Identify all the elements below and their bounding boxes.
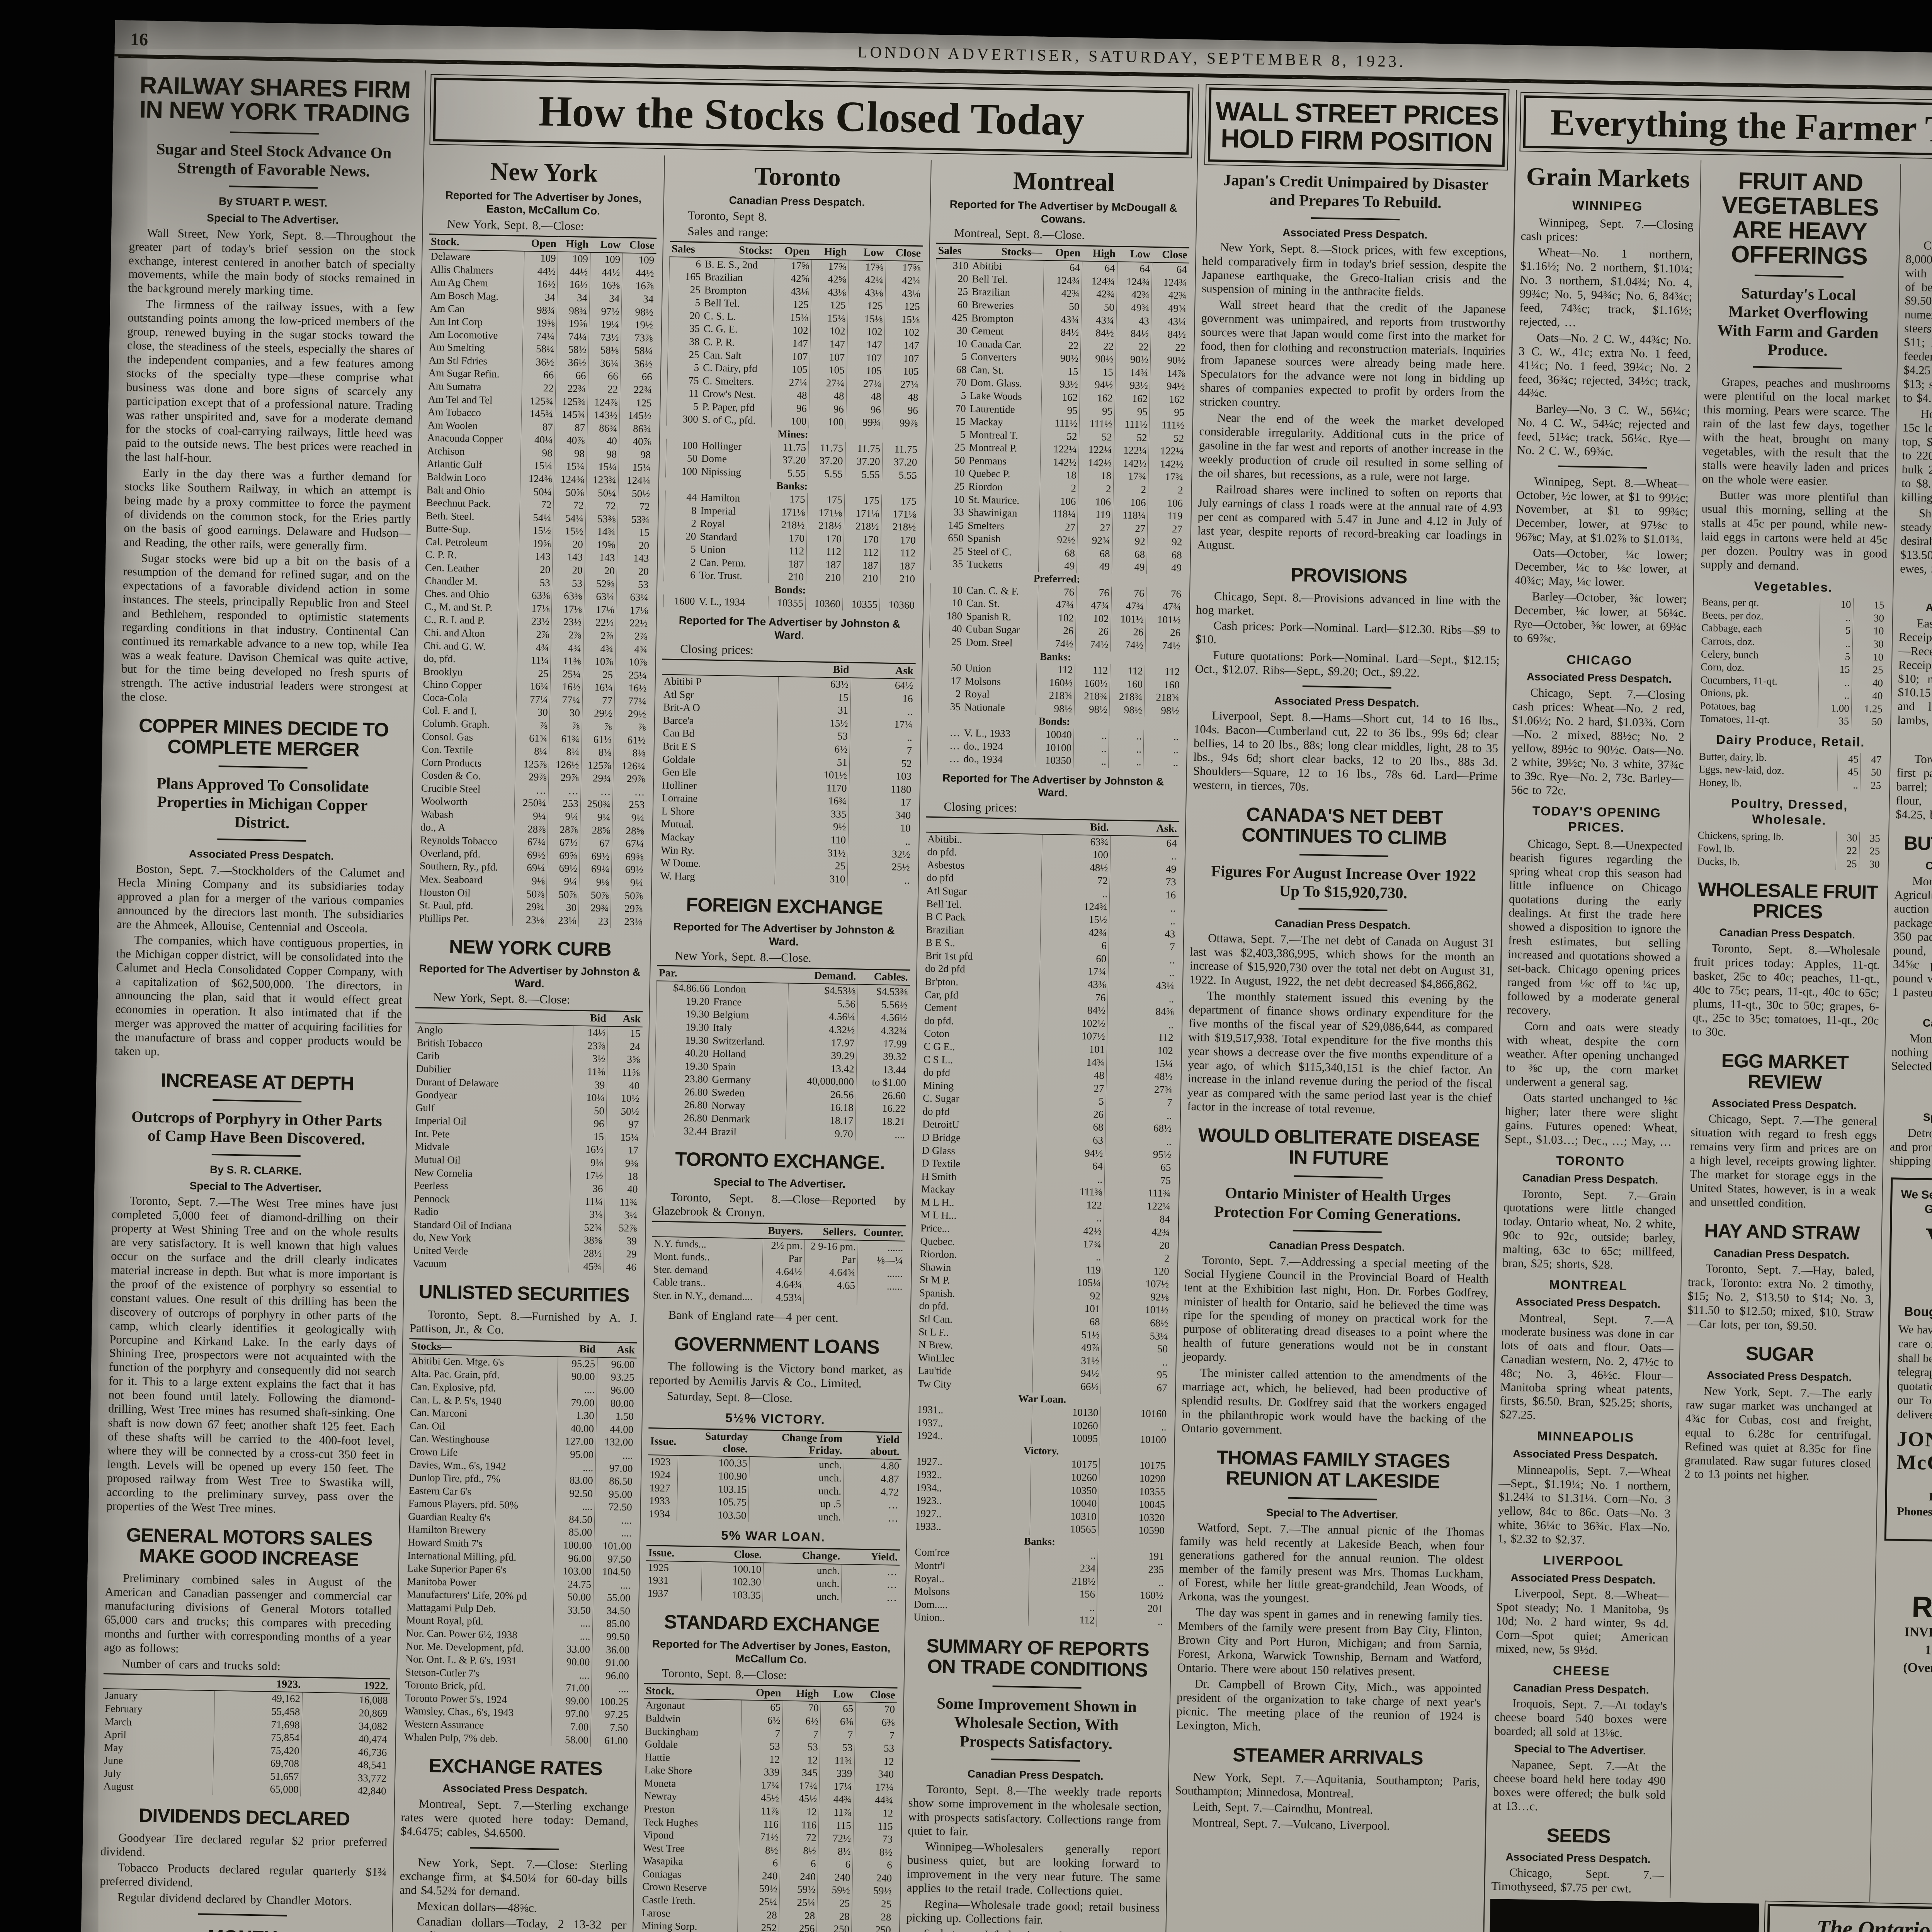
table-cell: .... xyxy=(855,1128,907,1141)
table-cell: Lau'tide xyxy=(916,1364,1032,1379)
table-cell: C. Dairy, pfd xyxy=(701,361,773,376)
market-title-montreal: Montreal xyxy=(937,166,1191,198)
table-cell: 95.00 xyxy=(556,1448,596,1461)
table-cell: 1932.. xyxy=(914,1468,1031,1483)
table-cell: 53 xyxy=(855,1742,896,1755)
table-cell: 109 xyxy=(524,251,558,265)
column-header: Cables. xyxy=(858,969,910,986)
table-cell: 252 xyxy=(737,1921,779,1932)
table-cell: 160 xyxy=(1110,677,1145,691)
text-para: Bank of England rate—4 per cent. xyxy=(650,1308,904,1327)
text-byline: Special to The Advertiser. xyxy=(112,1178,399,1196)
table-cell: 93.25 xyxy=(597,1371,636,1384)
table-cell: Lake Woods xyxy=(968,389,1042,403)
table-cell: 1927.. xyxy=(914,1455,1031,1470)
table-cell: 10 xyxy=(932,492,966,506)
text-sub: Saturday's Local Market Overflowing With… xyxy=(1716,283,1881,361)
table-cell: Argonaut xyxy=(643,1698,742,1713)
table-cell: unch. xyxy=(763,1563,842,1577)
table-cell: C. G. E. xyxy=(702,323,774,337)
text-para: Preliminary combined sales in August of … xyxy=(104,1571,392,1659)
table-cell: 93½ xyxy=(1042,378,1080,391)
table-cell: 45½ xyxy=(740,1791,781,1805)
table-cell: Bell Tel. xyxy=(924,897,1041,912)
table-cell: … xyxy=(548,784,581,798)
table-cell: 23⅛ xyxy=(546,914,578,927)
headline-government-loans: GOVERNMENT LOANS xyxy=(652,1333,901,1358)
table-cell: 74½ xyxy=(1037,637,1076,651)
headline-butter-eggs: BUTTER AND EGGS xyxy=(1897,833,1932,857)
table-cell: 4.64¾ xyxy=(762,1278,804,1291)
table-cell: 26.56 xyxy=(786,1087,856,1102)
table-cell: 52¾ xyxy=(570,1221,605,1234)
table-cell: 235 xyxy=(1097,1562,1166,1577)
table-cell: 40.20 xyxy=(655,1046,711,1060)
table-cell: 20 xyxy=(617,539,651,552)
table-cell: 165 xyxy=(669,270,703,284)
table-cell: 50 xyxy=(571,1104,607,1117)
table-cell: Union xyxy=(963,662,1037,676)
table-cell: 7 xyxy=(741,1726,782,1740)
table-cell: 11.75 xyxy=(771,440,808,454)
table-cell: WinElec xyxy=(916,1351,1033,1366)
column-header xyxy=(662,659,779,677)
table-cell: 10045 xyxy=(1099,1497,1167,1512)
table-cell: 8½ xyxy=(853,1845,895,1859)
table-cell: 17¾ xyxy=(1113,470,1148,483)
table-cell: 19¼ xyxy=(589,318,621,331)
column-header: Close xyxy=(1152,247,1189,263)
text-para: The companies, which have contiguous pro… xyxy=(114,933,403,1063)
table-cell: N Brew. xyxy=(916,1338,1033,1354)
table-cell: 1934.. xyxy=(914,1481,1031,1496)
table-cell: 102 xyxy=(847,325,885,338)
table-cell: 29⅞ xyxy=(549,771,581,785)
table-cell: Woolworth xyxy=(419,795,515,810)
table-cell: 68 xyxy=(1039,546,1077,560)
table-cell: Wabash xyxy=(418,808,514,822)
table-cell: 15½ xyxy=(553,525,585,538)
table-cell: 70 xyxy=(855,1702,897,1716)
column-left-financial-news: RAILWAY SHARES FIRM IN NEW YORK TRADINGS… xyxy=(73,65,425,1932)
column-header: Open xyxy=(774,243,812,259)
table-cell: 84½ xyxy=(1151,328,1188,341)
table-cell: 22 xyxy=(1081,339,1116,353)
table-cell: 35 xyxy=(928,700,963,714)
text-para: Wheat—No. 1 northern, $1.16½; No. 2 nort… xyxy=(1519,245,1693,332)
table-cell: 9⅜ xyxy=(605,1156,640,1170)
table-cell: 18 xyxy=(1078,469,1114,483)
table-cell: 36¼ xyxy=(588,357,621,370)
table-cell: 116 xyxy=(781,1818,819,1832)
table-cell: 36½ xyxy=(621,357,655,371)
table-cell: Mining Sorp. xyxy=(639,1919,738,1932)
table-cell: 37.20 xyxy=(808,454,845,468)
column-header: 1923. xyxy=(214,1675,303,1692)
table-cell: .. xyxy=(1108,966,1177,980)
victory-bond-tagline: We Serve Western Ontario With Gilt-Edge … xyxy=(1900,1187,1932,1219)
table-cell: 122¼ xyxy=(1149,444,1186,458)
table-cell: 100.00 xyxy=(554,1539,594,1552)
table-cell: Converters xyxy=(969,350,1043,365)
table-cell: 16,088 xyxy=(302,1692,390,1708)
table-cell: 52 xyxy=(1114,431,1149,444)
table-cell: 240 xyxy=(738,1869,780,1883)
table-cell: Onions, pk. xyxy=(1698,686,1818,701)
table-cell: 210 xyxy=(806,571,843,584)
text-para: Corn and oats were steady with wheat, de… xyxy=(1505,1019,1679,1092)
table-cell: 111½ xyxy=(1079,417,1114,431)
table-cell: 36 xyxy=(570,1182,605,1196)
table-cell: 27¼ xyxy=(809,376,847,390)
table-cell: 65 xyxy=(1105,1160,1173,1174)
table-cell: St. Paul, pfd. xyxy=(417,898,513,913)
table-cell: Mackay xyxy=(919,1183,1036,1198)
text-para: Hog receipts 27,000; mostly 10c to 15c l… xyxy=(1901,407,1932,508)
table-cell: 16¼ xyxy=(582,681,615,694)
table-cell: 52⅞ xyxy=(604,1221,639,1235)
table-cell: 98½ xyxy=(1036,702,1075,716)
table-cell: 210 xyxy=(843,571,880,585)
market-title-new-york: New York xyxy=(430,156,658,189)
table-cell: 48 xyxy=(809,389,847,403)
table-cell: 96.00 xyxy=(592,1669,631,1682)
table-cell: 96 xyxy=(772,401,809,415)
table-cell: do pfd xyxy=(920,1105,1037,1120)
table-cell: 125⅞ xyxy=(581,759,614,772)
table-cell: 92¾ xyxy=(1077,534,1112,548)
column-fruit-vegetables: FRUIT AND VEGETABLES ARE HEAVY OFFERINGS… xyxy=(1670,160,1900,1902)
table-cell: 10 xyxy=(848,821,913,835)
table-cell: 3⅛ xyxy=(570,1208,605,1221)
table-cell: 74½ xyxy=(1145,639,1182,653)
table-cell: 4.72 xyxy=(843,1485,901,1499)
table-cell: 19.30 xyxy=(655,1059,710,1073)
text-byline: Associated Press Despatch. xyxy=(401,1781,629,1798)
column-header: Stocks— xyxy=(971,244,1044,260)
table-cell: 109 xyxy=(622,253,656,267)
table-cell: 124¾ xyxy=(1152,276,1189,289)
table-cell: 104.50 xyxy=(594,1565,633,1579)
table-cell: 1180 xyxy=(849,782,913,796)
table-cell: 69¼ xyxy=(513,861,547,875)
text-para: Toronto, Sept. 7.—Addressing a special m… xyxy=(1183,1252,1489,1369)
table-cell: 40⅞ xyxy=(619,435,653,449)
table-cell: 19⅝ xyxy=(519,537,553,551)
table-cell: 50⅞ xyxy=(547,888,579,901)
table-cell: 1.25 xyxy=(1851,702,1884,716)
table-cell: 55.00 xyxy=(593,1591,633,1605)
table-cell: 171⅛ xyxy=(844,507,881,520)
table-cell: 26 xyxy=(1146,626,1183,639)
table-cell: 1.00 xyxy=(1818,702,1852,715)
table-cell: 50⅞ xyxy=(611,889,645,903)
table-cell: 42,840 xyxy=(301,1784,388,1798)
table-cell: C. Sugar xyxy=(921,1092,1037,1107)
table-cell: 37.20 xyxy=(845,455,883,468)
table-cell: 147 xyxy=(884,339,921,352)
table-cell: Nipissing xyxy=(699,465,771,480)
table-cell: 71½ xyxy=(739,1830,781,1844)
table-cell: ...... xyxy=(857,1279,905,1293)
table-cell: 15¼ xyxy=(587,460,619,474)
table-cell: 4.65 xyxy=(804,1279,857,1293)
table-cell: 1931.. xyxy=(915,1403,1032,1418)
table-cell: 22½ xyxy=(583,616,616,629)
table-cell: ⅛—¼ xyxy=(857,1253,905,1267)
table-cell: 17 xyxy=(849,795,913,809)
table-cell: 10½ xyxy=(607,1092,641,1105)
table-cell: 97.00 xyxy=(595,1461,635,1475)
table-cell: 218½ xyxy=(770,518,807,532)
data-table: Issue.Close.Change.Yield.1925100.10unch.… xyxy=(645,1545,900,1604)
table-cell: 28 xyxy=(779,1909,817,1922)
table-cell: V. L., 1933 xyxy=(962,726,1036,741)
table-cell: 7 xyxy=(1106,1095,1174,1109)
column-header xyxy=(103,1673,215,1690)
table-cell: 5 xyxy=(934,350,969,363)
table-cell: 162 xyxy=(1150,393,1187,406)
table-cell: 63½ xyxy=(778,677,851,691)
table-cell: 36.00 xyxy=(592,1643,631,1656)
table-cell: 77¼ xyxy=(550,693,583,707)
table-cell: 49 xyxy=(1147,561,1184,575)
column-header: Close. xyxy=(702,1546,764,1563)
table-cell: 98 xyxy=(587,447,619,461)
table-cell: .. xyxy=(1074,728,1109,742)
table-cell: 10260 xyxy=(1031,1470,1099,1485)
table-cell: Mackay xyxy=(968,415,1041,430)
table-cell: 175 xyxy=(770,492,808,506)
table-cell: 111½ xyxy=(1041,417,1080,430)
table-cell: 143½ xyxy=(587,408,620,422)
table-cell: 63¼ xyxy=(616,591,650,604)
table-cell: 122¼ xyxy=(1079,443,1114,457)
table-cell: 25 xyxy=(1859,845,1882,858)
table-cell: 12 xyxy=(740,1752,782,1766)
table-cell: Brompton xyxy=(969,311,1043,326)
table-cell: Asbestos xyxy=(925,858,1042,873)
table-cell: 105 xyxy=(884,365,921,378)
table-cell: 23 xyxy=(578,914,611,928)
table-cell: .... xyxy=(556,1461,595,1474)
table-cell: Sweden xyxy=(710,1086,787,1100)
table-cell: 44.00 xyxy=(596,1423,635,1436)
table-cell: 2⅞ xyxy=(616,629,650,643)
table-cell: 19½ xyxy=(621,318,655,332)
table-cell: Col. F. and I. xyxy=(420,704,516,719)
table-cell: 240 xyxy=(818,1871,852,1884)
table-cell: unch. xyxy=(749,1457,844,1472)
table-cell: 96.00 xyxy=(554,1551,594,1565)
table-cell: 8½ xyxy=(780,1844,818,1857)
table-cell: .. xyxy=(1109,901,1178,915)
table-cell: 99.50 xyxy=(592,1630,632,1644)
table-cell: unch. xyxy=(749,1483,844,1498)
table-cell: 218¾ xyxy=(1145,691,1182,704)
table-cell: 22¾ xyxy=(556,382,588,395)
table-cell: Shawinigan xyxy=(966,506,1040,520)
table-cell: 101 xyxy=(1034,1301,1102,1316)
column-header: Change. xyxy=(764,1548,842,1564)
table-cell: 98½ xyxy=(1074,702,1109,716)
market-title-livestock: Live Stock xyxy=(1906,169,1932,201)
table-cell: 80.00 xyxy=(597,1396,636,1410)
table-cell: 240 xyxy=(780,1870,818,1883)
table-cell: S. of C., pfd. xyxy=(700,413,772,428)
table-cell: 4.64½ xyxy=(762,1265,804,1278)
headline-wholesale-fruit: WHOLESALE FRUIT PRICES xyxy=(1697,879,1879,923)
table-cell: 218¾ xyxy=(1036,689,1075,702)
table-cell: 42¼ xyxy=(885,274,922,287)
table-cell: 5.55 xyxy=(882,468,919,482)
table-cell: 175 xyxy=(807,493,845,507)
table-cell: 37.20 xyxy=(771,454,808,467)
table-cell: 10355 xyxy=(768,596,806,610)
table-cell: 15½ xyxy=(519,524,553,537)
table-cell: 52⅝ xyxy=(584,577,617,590)
table-cell: 42¾ xyxy=(1040,925,1109,940)
text-byline: Reported for The Advertiser by Johnston … xyxy=(657,920,911,951)
table-cell: 102 xyxy=(773,324,811,337)
text-byline: Associated Press Despatch. xyxy=(1502,1295,1674,1311)
divider-rule xyxy=(213,1099,301,1102)
table-cell: .. xyxy=(1108,755,1143,769)
table-cell: Switzerland. xyxy=(711,1034,787,1048)
table-cell: 11⅞ xyxy=(819,1806,854,1819)
table-cell: 84½ xyxy=(1039,1003,1108,1017)
table-cell: February xyxy=(103,1702,214,1717)
table-cell: 92⅛ xyxy=(1102,1290,1171,1304)
table-cell: 67 xyxy=(1101,1381,1169,1395)
table-cell: 28⅝ xyxy=(580,823,612,837)
text-byline: Associated Press Despatch. xyxy=(1691,1096,1878,1112)
column-header xyxy=(712,967,789,983)
table-cell: 44½ xyxy=(558,265,590,279)
table-cell: 8¼ xyxy=(515,745,549,758)
table-cell: 68 xyxy=(1147,548,1184,562)
table-cell: 53⅜ xyxy=(585,512,618,526)
table-cell: 12 xyxy=(854,1754,896,1768)
table-cell: 48 xyxy=(772,389,810,402)
table-cell: 96 xyxy=(809,402,846,416)
table-cell: C S L.. xyxy=(922,1053,1038,1068)
table-cell: 49 xyxy=(1077,560,1112,573)
table-cell: 36½ xyxy=(522,355,556,369)
table-cell: 101½ xyxy=(776,768,849,782)
table-cell: … xyxy=(515,784,549,797)
table-cell: .. xyxy=(1144,730,1181,743)
table-cell: 27 xyxy=(1112,522,1148,535)
text-byline: Canadian Press Despatch. xyxy=(1185,1237,1489,1256)
headline-fruit-vegetables: FRUIT AND VEGETABLES ARE HEAVY OFFERINGS xyxy=(1708,168,1892,269)
table-cell: 109 xyxy=(558,252,590,266)
table-cell: 106 xyxy=(1113,496,1148,509)
table-cell: 77¼ xyxy=(516,693,550,706)
table-cell: 74¼ xyxy=(556,330,589,344)
table-cell: 29¾ xyxy=(512,900,546,914)
table-cell: 34,082 xyxy=(302,1719,389,1733)
table-cell: 6 xyxy=(738,1856,780,1870)
table-cell: 73 xyxy=(1110,875,1178,889)
column-header: Yield about. xyxy=(844,1431,901,1459)
text-para: Montreal, Sept. 7.—Vulcano, Liverpool. xyxy=(1174,1815,1479,1834)
table-cell: 11¼ xyxy=(517,654,551,667)
text-para: Barley—October, ⅜c lower; December, ⅛c l… xyxy=(1514,589,1687,648)
table-cell: 10⅞ xyxy=(615,655,649,669)
table-cell: 63¾ xyxy=(1042,834,1111,849)
table-cell: Mont. funds.. xyxy=(651,1250,763,1265)
table-cell: 17⅝ xyxy=(811,259,849,273)
table-cell: 20 xyxy=(585,564,617,578)
table-cell: 107 xyxy=(772,350,810,363)
table-cell: 66 xyxy=(620,370,654,384)
divider-rule xyxy=(219,765,308,769)
table-cell: 102 xyxy=(1037,611,1076,625)
table-cell: 11⅜ xyxy=(572,1065,607,1078)
table-cell: .. xyxy=(1110,849,1179,863)
table-cell: 74¼ xyxy=(523,330,557,343)
table-cell: 124⅜ xyxy=(520,472,554,486)
headline-copper-mines: COPPER MINES DECIDE TO COMPLETE MERGER xyxy=(122,715,405,761)
table-cell: 95 xyxy=(1114,405,1150,418)
table-cell: 5.56 xyxy=(788,997,857,1011)
table-cell: do, pfd. xyxy=(421,652,517,667)
table-cell: Coton xyxy=(922,1027,1039,1042)
data-table: 1923.1922.January49,16216,088February55,… xyxy=(101,1673,390,1798)
table-cell: ⅞ xyxy=(549,719,582,733)
text-sub: Some Improvement Shown in Wholesale Sect… xyxy=(921,1694,1152,1754)
table-cell: 64 xyxy=(1082,261,1117,275)
table-cell: 6½ xyxy=(741,1713,783,1727)
table-cell: unch. xyxy=(749,1470,844,1485)
table-cell: 170 xyxy=(769,531,807,545)
table-cell: 90½ xyxy=(1150,354,1187,367)
table-cell: Houston Oil xyxy=(417,886,513,900)
table-cell: 16.22 xyxy=(855,1102,908,1116)
table-cell: Chi. and Alton xyxy=(422,626,518,641)
table-cell: 10260 xyxy=(1032,1418,1100,1432)
text-byline: Canadian Press Despatch. xyxy=(1190,915,1495,934)
table-cell: 47 xyxy=(1861,753,1883,766)
table-cell: 53 xyxy=(616,578,650,591)
table-cell: 5.55 xyxy=(845,468,882,481)
table-cell: Can Bd xyxy=(661,727,777,742)
table-cell: … xyxy=(842,1564,899,1578)
text-byline: Special to The Advertiser. xyxy=(1180,1505,1484,1523)
table-cell: 25¼ xyxy=(615,668,649,682)
table-cell: Dom. Steel xyxy=(964,636,1037,650)
table-cell: 58½ xyxy=(556,343,589,357)
table-cell: .... xyxy=(591,1682,631,1696)
column-header: Stocks: xyxy=(703,242,775,259)
table-cell: .. xyxy=(1073,742,1109,755)
text-para: Liverpool, Sept. 8.—Wheat—Spot steady; N… xyxy=(1495,1586,1669,1659)
data-table: Butter, dairy, lb.4547Eggs, new-laid, do… xyxy=(1697,750,1884,792)
table-cell: 34.50 xyxy=(593,1604,632,1618)
table-cell: 45 xyxy=(1838,752,1861,766)
table-cell: London xyxy=(711,982,788,997)
text-byline: Canadian Press Despatch. xyxy=(1495,1681,1667,1697)
table-cell: 58¼ xyxy=(621,344,655,358)
text-h4: CHICAGO xyxy=(1513,651,1686,669)
text-para: Future quotations: Pork—Nominal. Lard—Se… xyxy=(1195,648,1500,681)
table-cell: 61¾ xyxy=(549,732,582,746)
table-cell: 51,657 xyxy=(213,1769,301,1784)
table-cell: V. L., 1934 xyxy=(697,595,769,609)
table-cell: 240 xyxy=(852,1871,894,1885)
text-para: Grapes, peaches and mushrooms were plent… xyxy=(1702,375,1890,489)
